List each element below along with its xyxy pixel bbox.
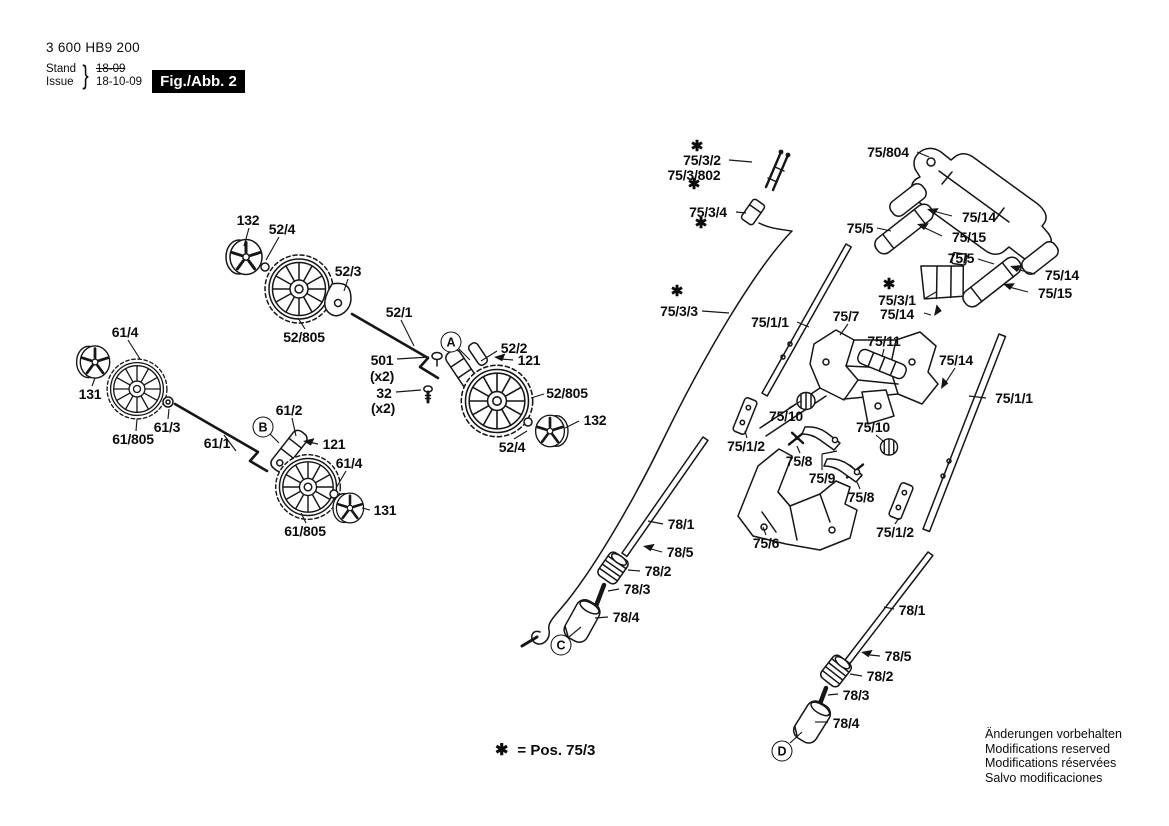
connector-75-3-4 bbox=[740, 198, 765, 226]
lever-75-9-a bbox=[802, 427, 840, 450]
part-callout-75-8: 75/8 bbox=[786, 453, 812, 469]
view-marker-B: B bbox=[253, 417, 274, 438]
part-callout-75-14: 75/14 bbox=[880, 306, 914, 322]
part-callout-78-2: 78/2 bbox=[645, 563, 671, 579]
part-callout-75-10: 75/10 bbox=[856, 419, 890, 435]
part-callout-61-805: 61/805 bbox=[112, 431, 154, 447]
part-callout-75-7: 75/7 bbox=[833, 308, 859, 324]
screw-501 bbox=[432, 353, 442, 367]
revision-brace: } bbox=[82, 60, 88, 91]
part-callout-78-3: 78/3 bbox=[624, 581, 650, 597]
pins-75-3-2 bbox=[766, 150, 790, 190]
part-callout-61-2: 61/2 bbox=[276, 402, 302, 418]
revision-labels: Stand Issue bbox=[46, 63, 76, 89]
part-callout-52-805: 52/805 bbox=[546, 385, 588, 401]
part-callout-52-4: 52/4 bbox=[269, 221, 295, 237]
asterisk-marker-icon: ✱ bbox=[688, 175, 701, 193]
hubcap-131-b bbox=[333, 493, 364, 523]
footnote-star-icon: ✱ bbox=[495, 742, 508, 759]
part-callout-132: 132 bbox=[237, 212, 260, 228]
wheel-61-805-a bbox=[107, 359, 167, 419]
part-callout--x2-: (x2) bbox=[370, 368, 394, 384]
wheel-52-805-b bbox=[461, 365, 532, 436]
part-callout-61-805: 61/805 bbox=[284, 523, 326, 539]
part-callout-75-1-1: 75/1/1 bbox=[751, 314, 789, 330]
part-callout-75-15: 75/15 bbox=[952, 229, 986, 245]
part-callout-132: 132 bbox=[584, 412, 607, 428]
part-callout-75-804: 75/804 bbox=[867, 144, 909, 160]
part-callout-75-1-1: 75/1/1 bbox=[995, 390, 1033, 406]
part-callout-75-5: 75/5 bbox=[847, 220, 873, 236]
part-callout-78-5: 78/5 bbox=[885, 648, 911, 664]
part-callout-78-5: 78/5 bbox=[667, 544, 693, 560]
old-date: 18-09 bbox=[96, 63, 142, 76]
part-callout-32: 32 bbox=[376, 385, 391, 401]
new-date: 18-10-09 bbox=[96, 76, 142, 89]
asterisk-marker-icon: ✱ bbox=[883, 275, 896, 293]
footnote: ✱= Pos. 75/3 bbox=[495, 740, 595, 760]
hubcap-132-b bbox=[536, 415, 568, 447]
asterisk-marker-icon: ✱ bbox=[695, 214, 708, 232]
part-callout-131: 131 bbox=[79, 386, 102, 402]
screw-marks bbox=[303, 205, 1022, 658]
part-callout-78-3: 78/3 bbox=[843, 687, 869, 703]
legal-line: Modifications reserved bbox=[985, 742, 1122, 757]
bracket-75-1-2-b bbox=[888, 482, 914, 520]
asterisk-marker-icon: ✱ bbox=[671, 282, 684, 300]
diagram-canvas: 3 600 HB9 200 Stand Issue } 18-09 18-10-… bbox=[0, 0, 1169, 826]
view-marker-C: C bbox=[551, 635, 572, 656]
part-callout-121: 121 bbox=[323, 436, 346, 452]
part-callout-78-4: 78/4 bbox=[613, 609, 639, 625]
axle-52-1 bbox=[352, 314, 438, 378]
washer-52-4-b bbox=[524, 418, 532, 426]
hubcap-131-a bbox=[77, 346, 110, 378]
asterisk-marker-icon: ✱ bbox=[691, 137, 704, 155]
part-callout-75-10: 75/10 bbox=[769, 408, 803, 424]
screw-32 bbox=[424, 386, 432, 402]
figure-label: Fig./Abb. 2 bbox=[152, 70, 245, 93]
wheel-52-805-a bbox=[265, 255, 333, 323]
wheel-61-805-b bbox=[276, 455, 341, 520]
washer-52-4-a bbox=[261, 263, 269, 271]
part-callout-75-1-2: 75/1/2 bbox=[876, 524, 914, 540]
footnote-text: = Pos. 75/3 bbox=[517, 742, 595, 759]
part-callout-75-14: 75/14 bbox=[962, 209, 996, 225]
part-callout-52-805: 52/805 bbox=[283, 329, 325, 345]
part-callout-75-1-2: 75/1/2 bbox=[727, 438, 765, 454]
part-callout-75-14: 75/14 bbox=[1045, 267, 1079, 283]
part-callout-75-3-3: 75/3/3 bbox=[660, 303, 698, 319]
legal-line: Salvo modificaciones bbox=[985, 771, 1122, 786]
legal-line: Modifications réservées bbox=[985, 756, 1122, 771]
cable-end bbox=[522, 637, 537, 646]
knob-75-10-a bbox=[797, 393, 815, 410]
part-callout-75-11: 75/11 bbox=[867, 333, 900, 349]
part-callout-75-5: 75/5 bbox=[948, 250, 974, 266]
part-callout-78-1: 78/1 bbox=[668, 516, 694, 532]
legal-line: Änderungen vorbehalten bbox=[985, 727, 1122, 742]
part-callout-131: 131 bbox=[374, 502, 397, 518]
part-callout-75-6: 75/6 bbox=[753, 535, 779, 551]
view-marker-A: A bbox=[441, 332, 462, 353]
part-callout-75-8: 75/8 bbox=[848, 489, 874, 505]
part-callout-78-2: 78/2 bbox=[867, 668, 893, 684]
part-callout-61-3: 61/3 bbox=[154, 419, 180, 435]
part-callout-52-3: 52/3 bbox=[335, 263, 361, 279]
stand-label: Stand bbox=[46, 63, 76, 76]
part-callout-78-1: 78/1 bbox=[899, 602, 925, 618]
part-callout-75-9: 75/9 bbox=[809, 470, 835, 486]
cable-stub bbox=[759, 223, 791, 231]
part-callout-61-4: 61/4 bbox=[112, 324, 138, 340]
view-marker-D: D bbox=[772, 741, 793, 762]
bracket-75-1-2-a bbox=[732, 397, 758, 435]
part-callout-75-14: 75/14 bbox=[939, 352, 973, 368]
legal-notice: Änderungen vorbehalten Modifications res… bbox=[985, 727, 1122, 785]
part-52-2 bbox=[467, 341, 489, 366]
part-callout-75-15: 75/15 bbox=[1038, 285, 1072, 301]
revision-values: 18-09 18-10-09 bbox=[96, 63, 142, 89]
part-callout-61-4: 61/4 bbox=[336, 455, 362, 471]
part-callout-121: 121 bbox=[518, 352, 541, 368]
part-callout-52-4: 52/4 bbox=[499, 439, 525, 455]
part-callout--x2-: (x2) bbox=[371, 400, 395, 416]
part-callout-78-4: 78/4 bbox=[833, 715, 859, 731]
lower-handle-d bbox=[790, 552, 933, 746]
part-callout-52-1: 52/1 bbox=[386, 304, 412, 320]
part-callout-501: 501 bbox=[371, 352, 394, 368]
nut-61-3 bbox=[163, 397, 173, 407]
part-callout-61-1: 61/1 bbox=[204, 435, 230, 451]
issue-label: Issue bbox=[46, 76, 76, 89]
part-number: 3 600 HB9 200 bbox=[46, 40, 140, 55]
